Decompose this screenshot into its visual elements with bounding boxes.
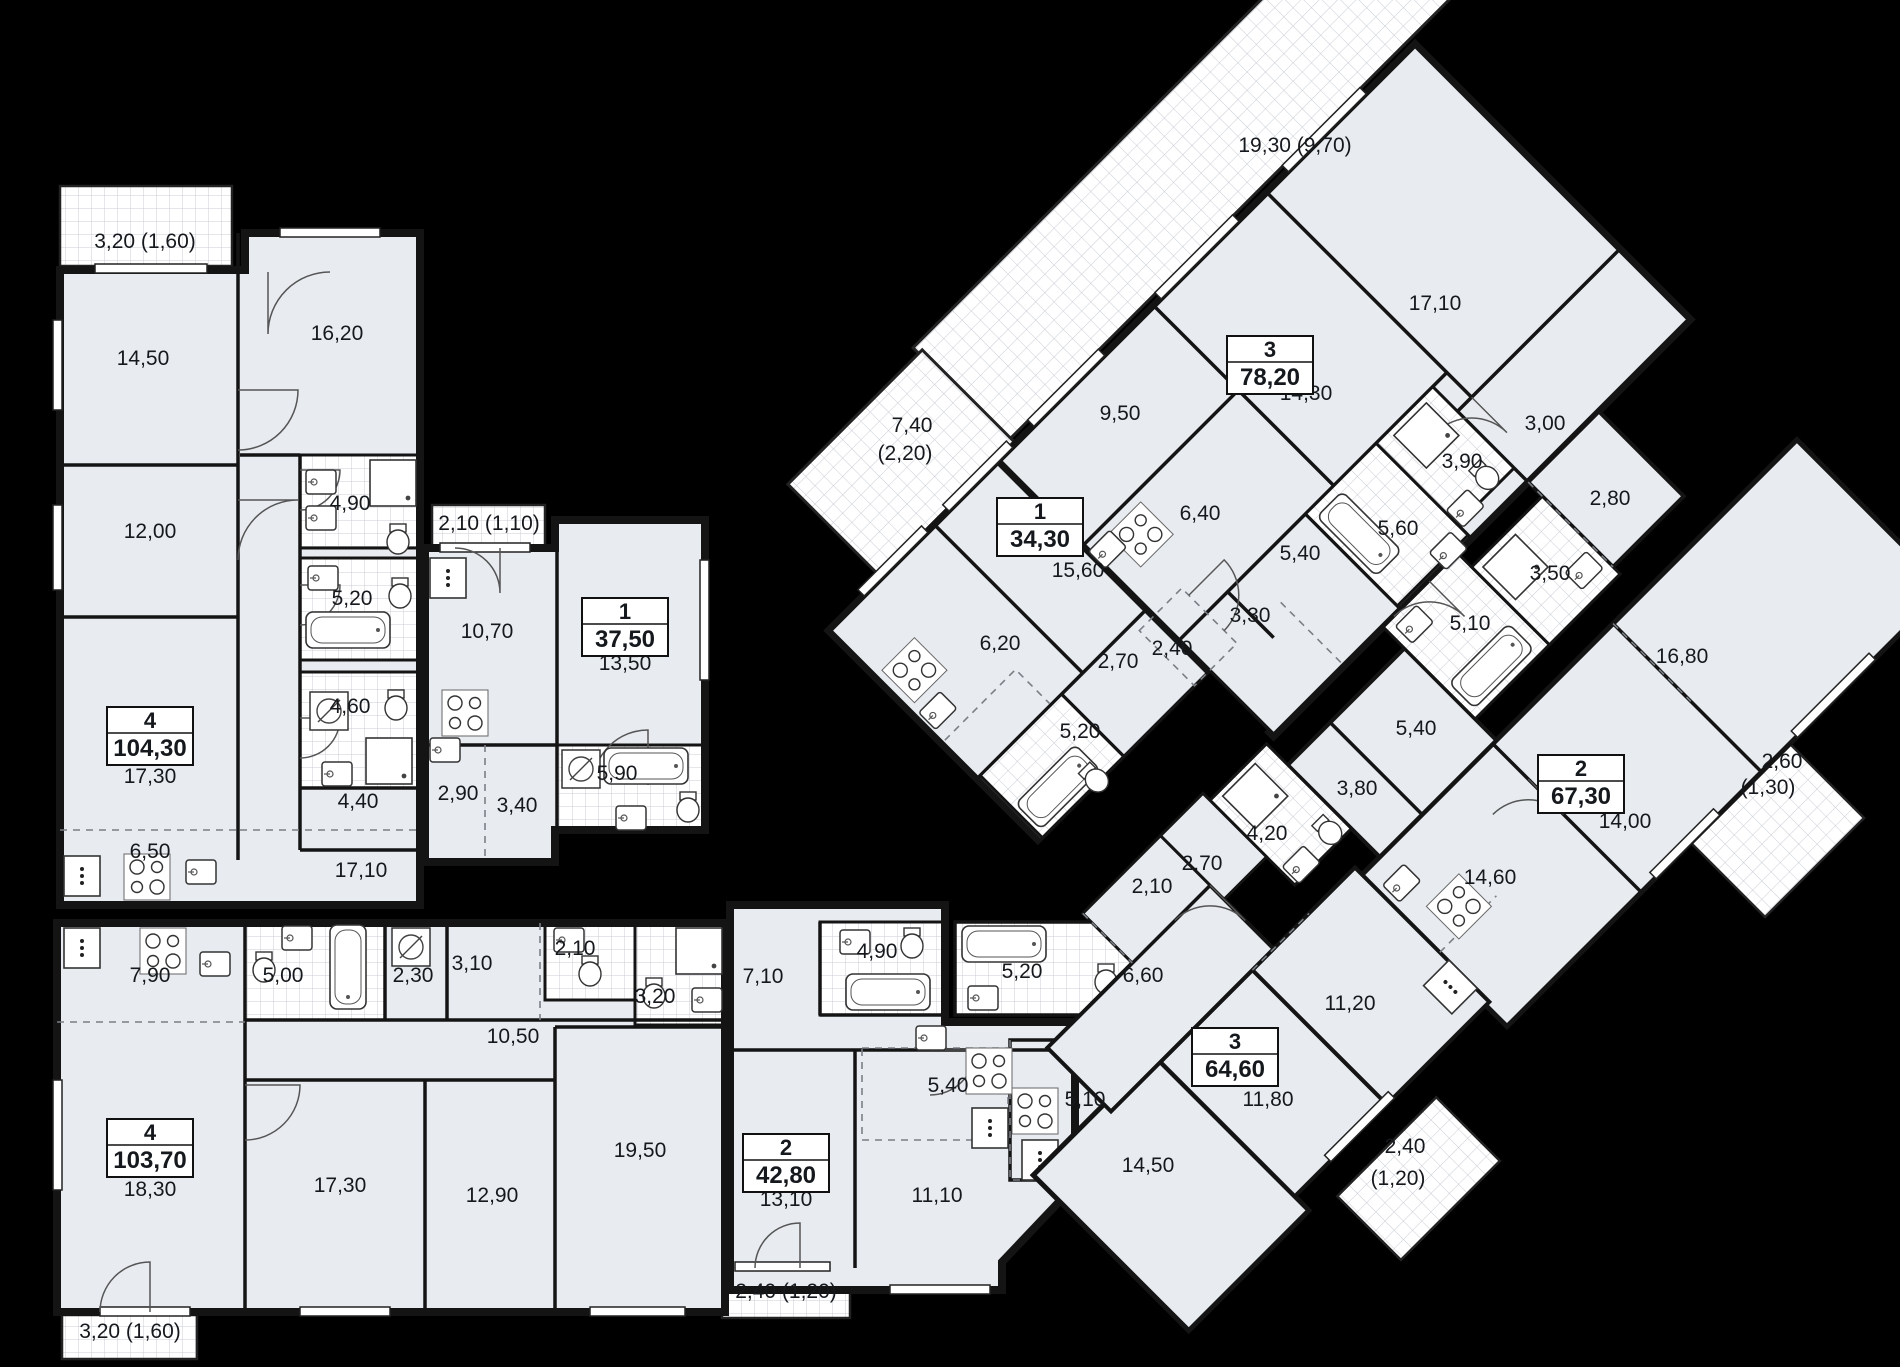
apartment-label-box: 137,50: [582, 598, 668, 656]
room-area-label: 2,10 (1,10): [438, 512, 540, 535]
room-area-label: 7,10: [743, 965, 784, 988]
room-area-label: 5,00: [263, 964, 304, 987]
room-area-label: 5,10: [1065, 1088, 1106, 1111]
room-area-label: 2,40: [1152, 637, 1193, 660]
room-area-label: 3,20 (1,60): [79, 1320, 181, 1343]
room-area-label: 3,90: [1442, 450, 1483, 473]
room-area-label: 6,60: [1123, 964, 1164, 987]
room-area-label: 7,40: [892, 414, 933, 437]
room-area-label: 5,40: [1396, 717, 1437, 740]
room-area-label: 18,30: [124, 1178, 177, 1201]
room-area-label: 9,50: [1100, 402, 1141, 425]
apartment-area: 104,30: [113, 735, 186, 762]
room-area-label: 4,40: [338, 790, 379, 813]
room-area-label: (2,20): [878, 442, 933, 465]
apartment-rooms-count: 1: [1034, 499, 1046, 524]
room-area-label: 2,40 (1,20): [735, 1280, 837, 1303]
room-area-label: 2,90: [438, 782, 479, 805]
room-area-label: 5,10: [1450, 612, 1491, 635]
apartment-label-box: 4103,70: [107, 1119, 193, 1177]
room-area-label: 5,20: [332, 587, 373, 610]
room-area-label: 14,50: [1122, 1154, 1175, 1177]
apartment-label-box: 378,20: [1227, 336, 1313, 394]
room-area-label: 4,20: [1247, 822, 1288, 845]
room-area-label: 5,20: [1060, 720, 1101, 743]
apartment-area: 103,70: [113, 1147, 186, 1174]
room-area-label: 14,50: [117, 347, 170, 370]
room-area-label: 5,90: [597, 762, 638, 785]
floorplan-page: 3,20 (1,60)14,5016,2012,004,905,204,604,…: [0, 0, 1900, 1367]
apartment-rooms-count: 1: [619, 599, 631, 624]
room-area-label: 6,20: [980, 632, 1021, 655]
room-area-label: 3,20: [635, 985, 676, 1008]
apartment-rooms-count: 2: [780, 1135, 792, 1160]
room-area-label: 17,30: [124, 765, 177, 788]
room-area-label: 11,80: [1243, 1088, 1294, 1111]
room-area-label: 2,70: [1182, 852, 1223, 875]
room-area-label: 4,90: [857, 940, 898, 963]
room-area-label: 3,30: [1230, 604, 1271, 627]
room-area-label: 5,40: [928, 1074, 969, 1097]
room-area-label: 3,00: [1525, 412, 1566, 435]
room-area-label: 2,30: [393, 964, 434, 987]
room-area-label: (1,20): [1371, 1167, 1426, 1190]
apartment-area: 64,60: [1205, 1056, 1265, 1083]
room-area-label: 12,00: [124, 520, 177, 543]
room-area-label: 2,80: [1590, 487, 1631, 510]
apartment-rooms-count: 4: [144, 708, 157, 733]
apartment-rooms-count: 3: [1229, 1029, 1241, 1054]
apartment-rooms-count: 4: [144, 1120, 157, 1145]
room-area-label: 5,40: [1280, 542, 1321, 565]
room-area-label: 4,90: [330, 492, 371, 515]
room-area-label: (1,30): [1741, 776, 1796, 799]
room-area-label: 19,50: [614, 1139, 667, 1162]
room-area-label: 16,20: [311, 322, 364, 345]
balcony-top-left: [60, 186, 232, 266]
room-area-label: 11,20: [1325, 992, 1376, 1015]
room-area-label: 3,50: [1530, 562, 1571, 585]
apartment-area: 67,30: [1551, 783, 1611, 810]
apartment-label-box: 4104,30: [107, 707, 193, 765]
floorplan-canvas: 3,20 (1,60)14,5016,2012,004,905,204,604,…: [0, 0, 1900, 1367]
apartment-label-box: 134,30: [997, 498, 1083, 556]
room-area-label: 5,60: [1378, 517, 1419, 540]
room-area-label: 2,40: [1385, 1135, 1426, 1158]
room-area-label: 2,10: [1132, 875, 1173, 898]
room-area-label: 2,10: [555, 937, 596, 960]
room-area-label: 10,70: [461, 620, 514, 643]
apartment-label-box: 242,80: [743, 1134, 829, 1192]
room-area-label: 17,30: [314, 1174, 367, 1197]
apartment-rooms-count: 3: [1264, 337, 1276, 362]
apartment-area: 34,30: [1010, 526, 1070, 553]
apartment-area: 37,50: [595, 626, 655, 653]
room-area-label: 17,10: [335, 859, 388, 882]
room-area-label: 11,10: [912, 1184, 963, 1207]
room-area-label: 10,50: [487, 1025, 540, 1048]
apartment-area: 78,20: [1240, 364, 1300, 391]
apartment-label-box: 364,60: [1192, 1028, 1278, 1086]
room-area-label: 16,80: [1656, 645, 1709, 668]
room-area-label: 2,70: [1098, 650, 1139, 673]
apartment-label-box: 267,30: [1538, 755, 1624, 813]
room-area-label: 6,50: [130, 840, 171, 863]
room-area-label: 3,80: [1337, 777, 1378, 800]
apartment-area: 42,80: [756, 1162, 816, 1189]
room-area-label: 19,30 (9,70): [1238, 134, 1351, 157]
room-area-label: 5,20: [1002, 960, 1043, 983]
room-area-label: 3,40: [497, 794, 538, 817]
room-area-label: 15,60: [1052, 559, 1105, 582]
room-area-label: 2,60: [1762, 750, 1803, 773]
room-area-label: 14,60: [1464, 866, 1517, 889]
room-area-label: 12,90: [466, 1184, 519, 1207]
room-area-label: 4,60: [330, 695, 371, 718]
room-area-label: 7,90: [130, 964, 171, 987]
room-area-label: 6,40: [1180, 502, 1221, 525]
room-area-label: 17,10: [1409, 292, 1462, 315]
apartment-rooms-count: 2: [1575, 756, 1587, 781]
room-area-label: 3,10: [452, 952, 493, 975]
room-area-label: 3,20 (1,60): [94, 230, 196, 253]
